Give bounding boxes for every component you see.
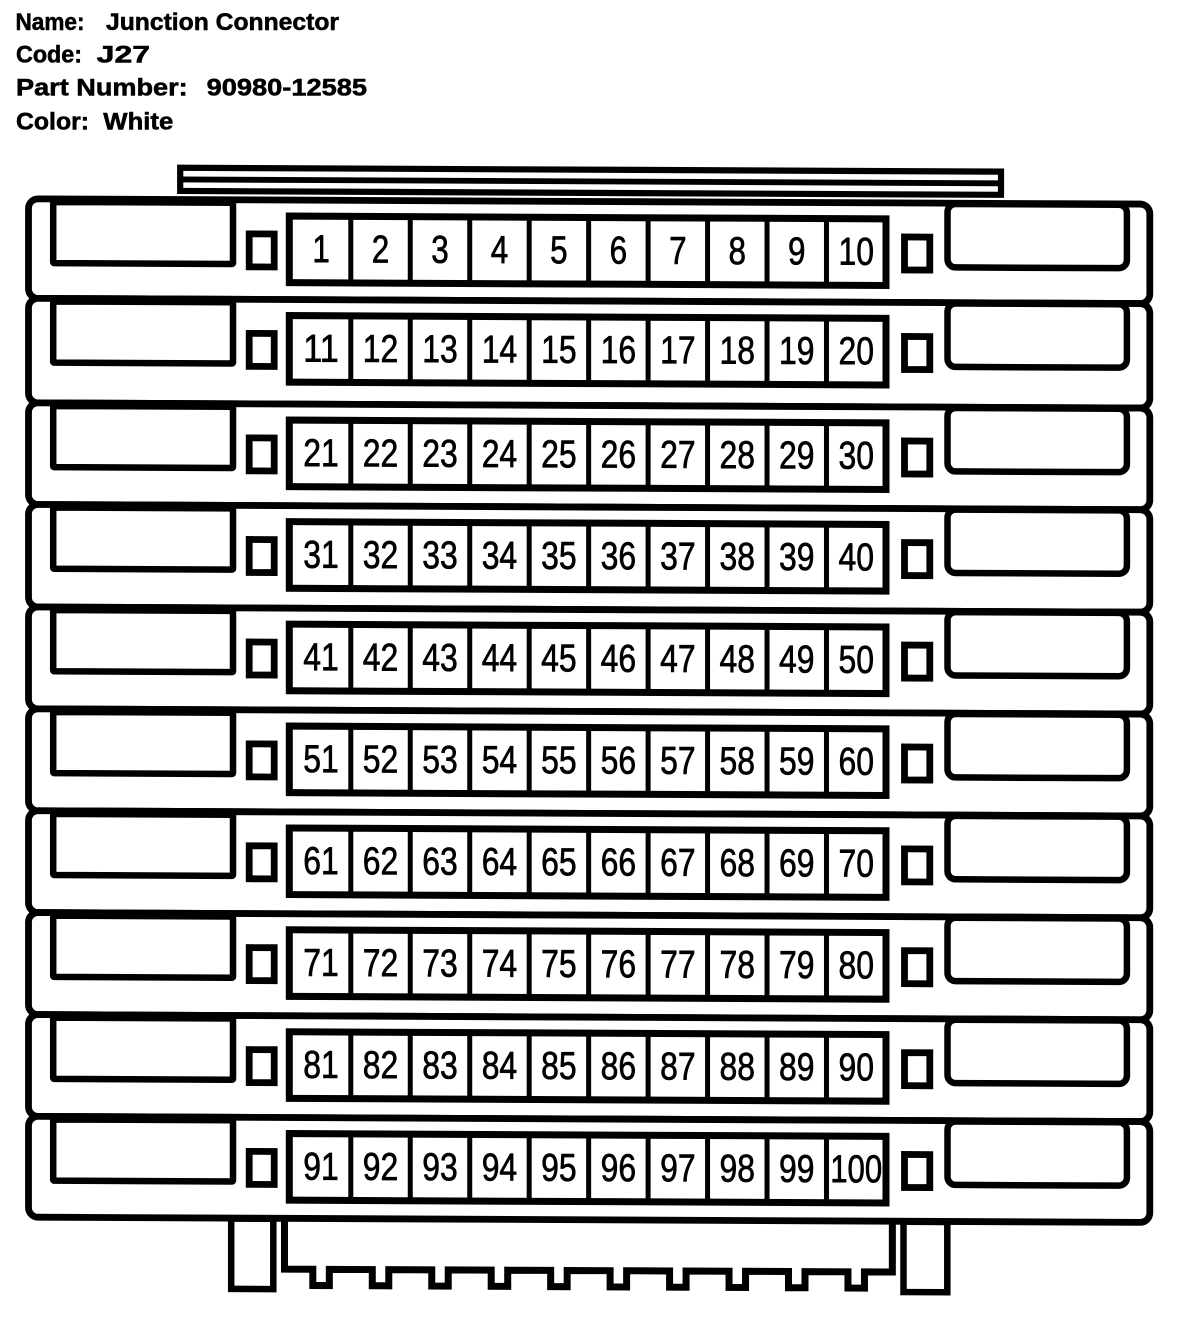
svg-text:5: 5 (550, 229, 568, 272)
svg-text:66: 66 (601, 841, 637, 884)
svg-text:54: 54 (482, 739, 518, 782)
svg-text:98: 98 (720, 1148, 756, 1191)
svg-text:14: 14 (482, 328, 518, 371)
svg-text:44: 44 (482, 637, 518, 680)
svg-text:Color:: Color: (16, 109, 89, 136)
svg-text:47: 47 (660, 638, 696, 681)
svg-text:34: 34 (482, 535, 518, 578)
svg-text:52: 52 (363, 738, 398, 781)
svg-text:63: 63 (422, 841, 458, 884)
svg-text:20: 20 (838, 330, 874, 373)
svg-text:8: 8 (729, 230, 747, 273)
svg-text:83: 83 (422, 1044, 458, 1087)
svg-text:68: 68 (720, 842, 756, 885)
svg-text:51: 51 (303, 738, 339, 781)
svg-text:59: 59 (779, 740, 815, 783)
svg-text:72: 72 (363, 942, 398, 985)
svg-text:1: 1 (312, 228, 330, 271)
svg-text:50: 50 (838, 639, 874, 682)
svg-text:Code:: Code: (16, 42, 82, 69)
svg-text:27: 27 (660, 434, 696, 477)
svg-text:Junction Connector: Junction Connector (106, 9, 339, 36)
svg-text:75: 75 (541, 943, 577, 986)
svg-text:10: 10 (838, 231, 874, 274)
svg-text:99: 99 (779, 1148, 815, 1191)
svg-text:70: 70 (838, 843, 874, 886)
svg-text:26: 26 (601, 434, 637, 477)
svg-text:9: 9 (788, 230, 806, 273)
svg-text:60: 60 (838, 741, 874, 784)
svg-text:71: 71 (303, 942, 339, 985)
svg-text:40: 40 (838, 536, 874, 579)
svg-text:12: 12 (363, 328, 398, 371)
svg-text:J27: J27 (97, 42, 150, 69)
svg-text:62: 62 (363, 840, 398, 883)
svg-text:90980-12585: 90980-12585 (207, 75, 367, 102)
svg-text:Part Number:: Part Number: (16, 75, 188, 102)
svg-text:96: 96 (601, 1147, 637, 1190)
svg-text:42: 42 (363, 637, 398, 680)
svg-text:80: 80 (838, 944, 874, 987)
svg-text:100: 100 (830, 1148, 882, 1191)
svg-text:95: 95 (541, 1147, 577, 1190)
svg-text:77: 77 (660, 944, 696, 987)
svg-text:13: 13 (422, 328, 458, 371)
svg-text:49: 49 (779, 638, 815, 681)
svg-text:38: 38 (720, 536, 756, 579)
svg-text:4: 4 (491, 229, 509, 272)
svg-text:88: 88 (720, 1046, 756, 1089)
svg-text:90: 90 (838, 1046, 874, 1089)
svg-text:86: 86 (601, 1045, 637, 1088)
svg-text:46: 46 (601, 638, 637, 681)
svg-text:17: 17 (660, 329, 696, 372)
svg-text:Name:: Name: (16, 9, 85, 36)
svg-text:91: 91 (303, 1146, 339, 1189)
svg-text:22: 22 (363, 432, 398, 475)
svg-text:93: 93 (422, 1146, 458, 1189)
svg-text:33: 33 (422, 534, 458, 577)
svg-text:11: 11 (303, 328, 339, 371)
svg-text:45: 45 (541, 637, 577, 680)
svg-text:36: 36 (601, 535, 637, 578)
svg-text:73: 73 (422, 942, 458, 985)
svg-text:81: 81 (303, 1044, 339, 1087)
svg-text:69: 69 (779, 842, 815, 885)
svg-text:58: 58 (720, 740, 756, 783)
svg-text:30: 30 (838, 435, 874, 478)
svg-text:3: 3 (431, 229, 449, 272)
svg-text:55: 55 (541, 739, 577, 782)
svg-text:23: 23 (422, 433, 458, 476)
svg-text:76: 76 (601, 943, 637, 986)
svg-text:67: 67 (660, 842, 696, 885)
svg-text:92: 92 (363, 1146, 398, 1189)
svg-text:57: 57 (660, 740, 696, 783)
svg-text:82: 82 (363, 1044, 398, 1087)
svg-text:43: 43 (422, 637, 458, 680)
svg-text:85: 85 (541, 1045, 577, 1088)
svg-text:6: 6 (610, 230, 628, 273)
svg-text:29: 29 (779, 434, 815, 477)
svg-text:18: 18 (720, 330, 756, 373)
svg-text:39: 39 (779, 536, 815, 579)
svg-text:15: 15 (541, 329, 577, 372)
svg-text:41: 41 (303, 636, 339, 679)
svg-text:78: 78 (720, 944, 756, 987)
svg-text:89: 89 (779, 1046, 815, 1089)
svg-text:32: 32 (363, 534, 398, 577)
svg-text:94: 94 (482, 1146, 518, 1189)
svg-text:97: 97 (660, 1147, 696, 1190)
svg-text:White: White (103, 109, 173, 136)
svg-text:56: 56 (601, 740, 637, 783)
svg-text:74: 74 (482, 943, 518, 986)
svg-text:87: 87 (660, 1046, 696, 1089)
svg-text:25: 25 (541, 433, 577, 476)
svg-text:61: 61 (303, 840, 339, 883)
svg-text:37: 37 (660, 535, 696, 578)
svg-text:31: 31 (303, 534, 339, 577)
svg-text:35: 35 (541, 535, 577, 578)
svg-text:7: 7 (669, 230, 687, 273)
svg-text:64: 64 (482, 841, 518, 884)
svg-text:65: 65 (541, 841, 577, 884)
svg-text:24: 24 (482, 433, 518, 476)
svg-text:19: 19 (779, 330, 815, 373)
svg-text:79: 79 (779, 944, 815, 987)
svg-text:2: 2 (372, 228, 390, 271)
svg-text:21: 21 (303, 432, 339, 475)
svg-text:84: 84 (482, 1045, 518, 1088)
svg-text:48: 48 (720, 638, 756, 681)
svg-text:53: 53 (422, 739, 458, 782)
svg-text:28: 28 (720, 434, 756, 477)
svg-text:16: 16 (601, 329, 637, 372)
